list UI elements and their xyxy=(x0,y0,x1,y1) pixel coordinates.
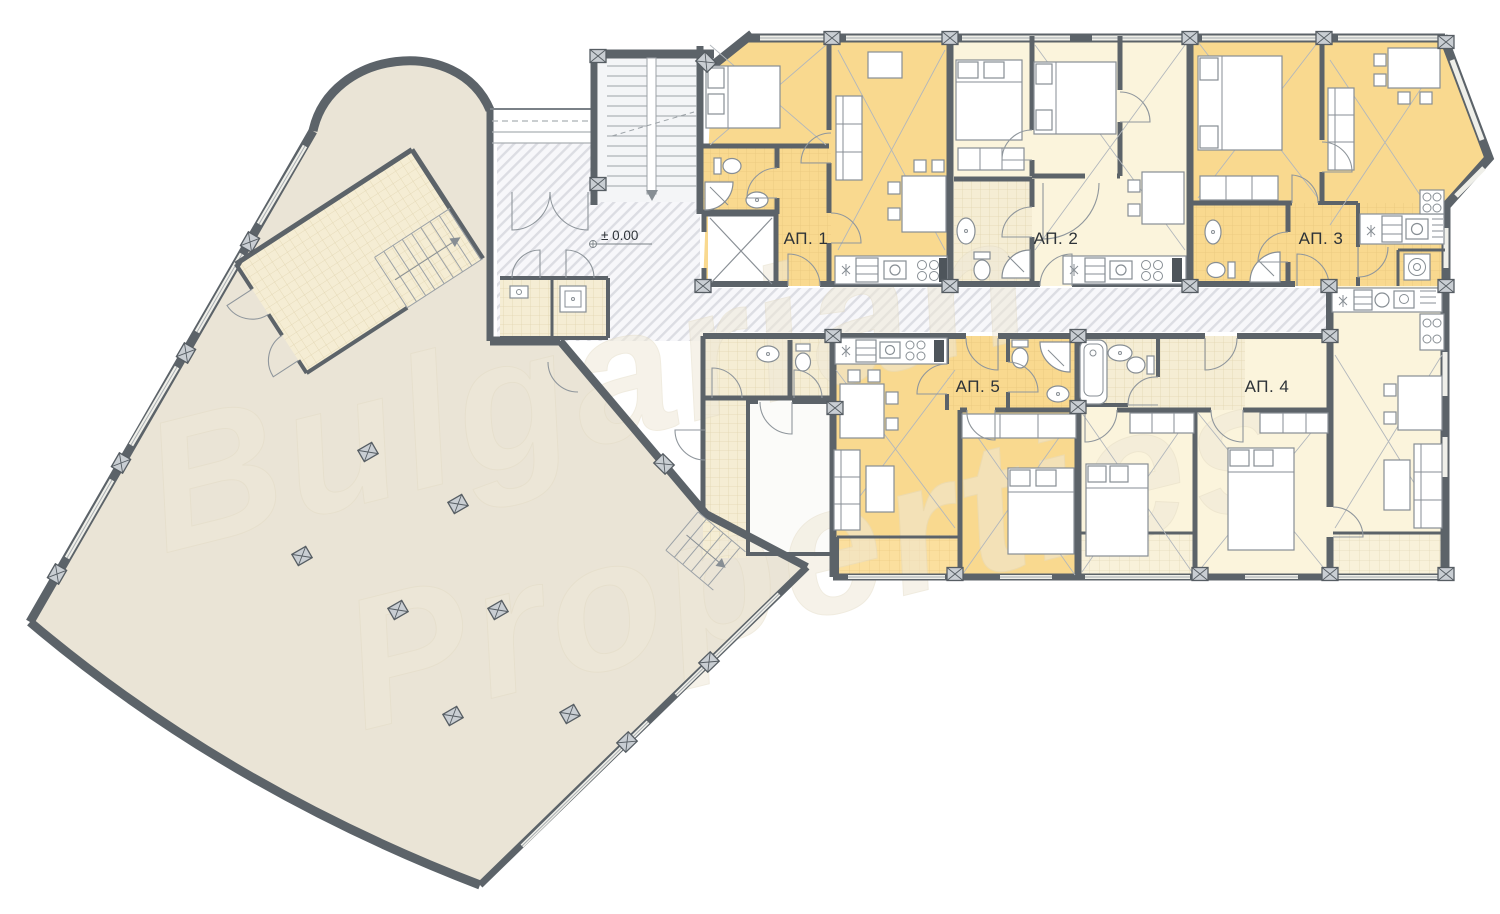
closet xyxy=(962,414,1076,438)
dining-table xyxy=(1398,376,1442,430)
column-marker xyxy=(1322,330,1338,343)
kitchen-counter xyxy=(835,338,947,364)
column-marker xyxy=(1438,280,1454,293)
pillow xyxy=(1200,58,1218,80)
chair xyxy=(1128,180,1140,192)
chair xyxy=(1420,92,1432,104)
kitchen-counter xyxy=(1063,256,1186,284)
kitchen-counter xyxy=(835,256,947,284)
closet xyxy=(1200,176,1278,200)
chair xyxy=(932,160,944,172)
sink xyxy=(746,192,768,208)
sofa xyxy=(836,96,862,180)
column-marker xyxy=(1192,568,1208,581)
sink xyxy=(957,218,975,244)
toilet-tank xyxy=(974,252,990,259)
column-marker xyxy=(1070,401,1086,414)
pillow xyxy=(1088,466,1106,482)
toilet xyxy=(1207,263,1225,278)
sink xyxy=(510,286,528,298)
sink xyxy=(1047,386,1069,402)
chair xyxy=(868,370,880,382)
dining-table xyxy=(840,384,884,438)
column-marker xyxy=(947,568,963,581)
fridge xyxy=(1172,258,1182,282)
apartment-5-label: АП. 5 xyxy=(956,377,1001,396)
chair xyxy=(888,182,900,194)
sofa xyxy=(1414,444,1442,528)
chair xyxy=(914,160,926,172)
column-marker xyxy=(695,280,711,293)
pillow xyxy=(1036,64,1052,84)
chair xyxy=(1128,204,1140,216)
chair xyxy=(1374,54,1386,66)
closet xyxy=(1260,413,1328,433)
armchair xyxy=(868,52,902,78)
column-marker xyxy=(590,178,606,191)
canopy-lines xyxy=(492,132,594,143)
chair xyxy=(1398,92,1410,104)
pillow xyxy=(1200,126,1218,148)
kitchen-sink xyxy=(1375,293,1389,307)
column-marker xyxy=(827,402,843,415)
sink xyxy=(757,346,779,362)
shower-tray xyxy=(560,286,586,312)
pillow xyxy=(708,94,724,114)
column-marker xyxy=(942,280,958,293)
chair xyxy=(1384,384,1396,396)
column-marker xyxy=(825,330,841,343)
sink xyxy=(1108,345,1132,361)
column-marker xyxy=(1182,280,1198,293)
chair xyxy=(888,208,900,220)
apartment-4-label: АП. 4 xyxy=(1245,377,1290,396)
pillow xyxy=(1010,470,1030,486)
coffee-table xyxy=(1384,460,1410,510)
column-marker xyxy=(1438,36,1454,49)
fridge xyxy=(934,340,944,362)
chair xyxy=(1384,412,1396,424)
chair xyxy=(1374,74,1386,86)
column-marker xyxy=(1182,32,1198,45)
stove xyxy=(1420,314,1444,350)
column-marker xyxy=(1438,568,1454,581)
apartment-1-label: АП. 1 xyxy=(784,229,829,248)
chair xyxy=(848,370,860,382)
dining-table xyxy=(1142,172,1184,224)
sink xyxy=(1205,220,1221,244)
chair xyxy=(886,418,898,430)
column-marker xyxy=(942,32,958,45)
dining-table xyxy=(1388,48,1440,88)
closet xyxy=(958,148,1024,170)
pillow xyxy=(1110,466,1128,482)
pillow xyxy=(1036,110,1052,130)
sofa xyxy=(834,450,860,530)
toilet xyxy=(796,353,811,371)
coffee-table xyxy=(866,466,894,512)
washing-machine xyxy=(1404,254,1430,280)
toilet-tank xyxy=(1012,340,1028,347)
stair-stringer xyxy=(647,58,656,194)
pillow xyxy=(1230,450,1249,466)
ap4-terrace-2 xyxy=(1333,533,1445,577)
pillow xyxy=(984,62,1004,78)
apartment-3-label: АП. 3 xyxy=(1299,229,1344,248)
column-marker xyxy=(1070,330,1086,343)
floor-plan-page: Bulgarian Properties xyxy=(0,0,1500,914)
toilet-tank xyxy=(796,344,810,351)
toilet xyxy=(1127,357,1145,373)
column-marker xyxy=(1316,32,1332,45)
toilet xyxy=(723,159,741,174)
level-mark-label: ± 0.00 xyxy=(601,228,638,243)
toilet-tank xyxy=(714,158,721,174)
toilet xyxy=(974,260,990,280)
floor-plan-svg: Bulgarian Properties xyxy=(0,0,1500,914)
closet xyxy=(1130,413,1194,433)
column-marker xyxy=(1322,568,1338,581)
apartment-2-label: АП. 2 xyxy=(1034,229,1079,248)
pillow xyxy=(1254,450,1273,466)
sofa xyxy=(1328,88,1354,170)
pillow xyxy=(958,62,978,78)
toilet-tank xyxy=(1147,356,1154,374)
pillow xyxy=(708,68,724,88)
chair xyxy=(886,392,898,404)
dining-table xyxy=(902,176,946,232)
column-marker xyxy=(1321,280,1337,293)
fridge xyxy=(939,258,947,282)
pillow xyxy=(1036,470,1056,486)
column-marker xyxy=(824,32,840,45)
toilet-tank xyxy=(1228,262,1235,278)
column-marker xyxy=(590,50,606,63)
